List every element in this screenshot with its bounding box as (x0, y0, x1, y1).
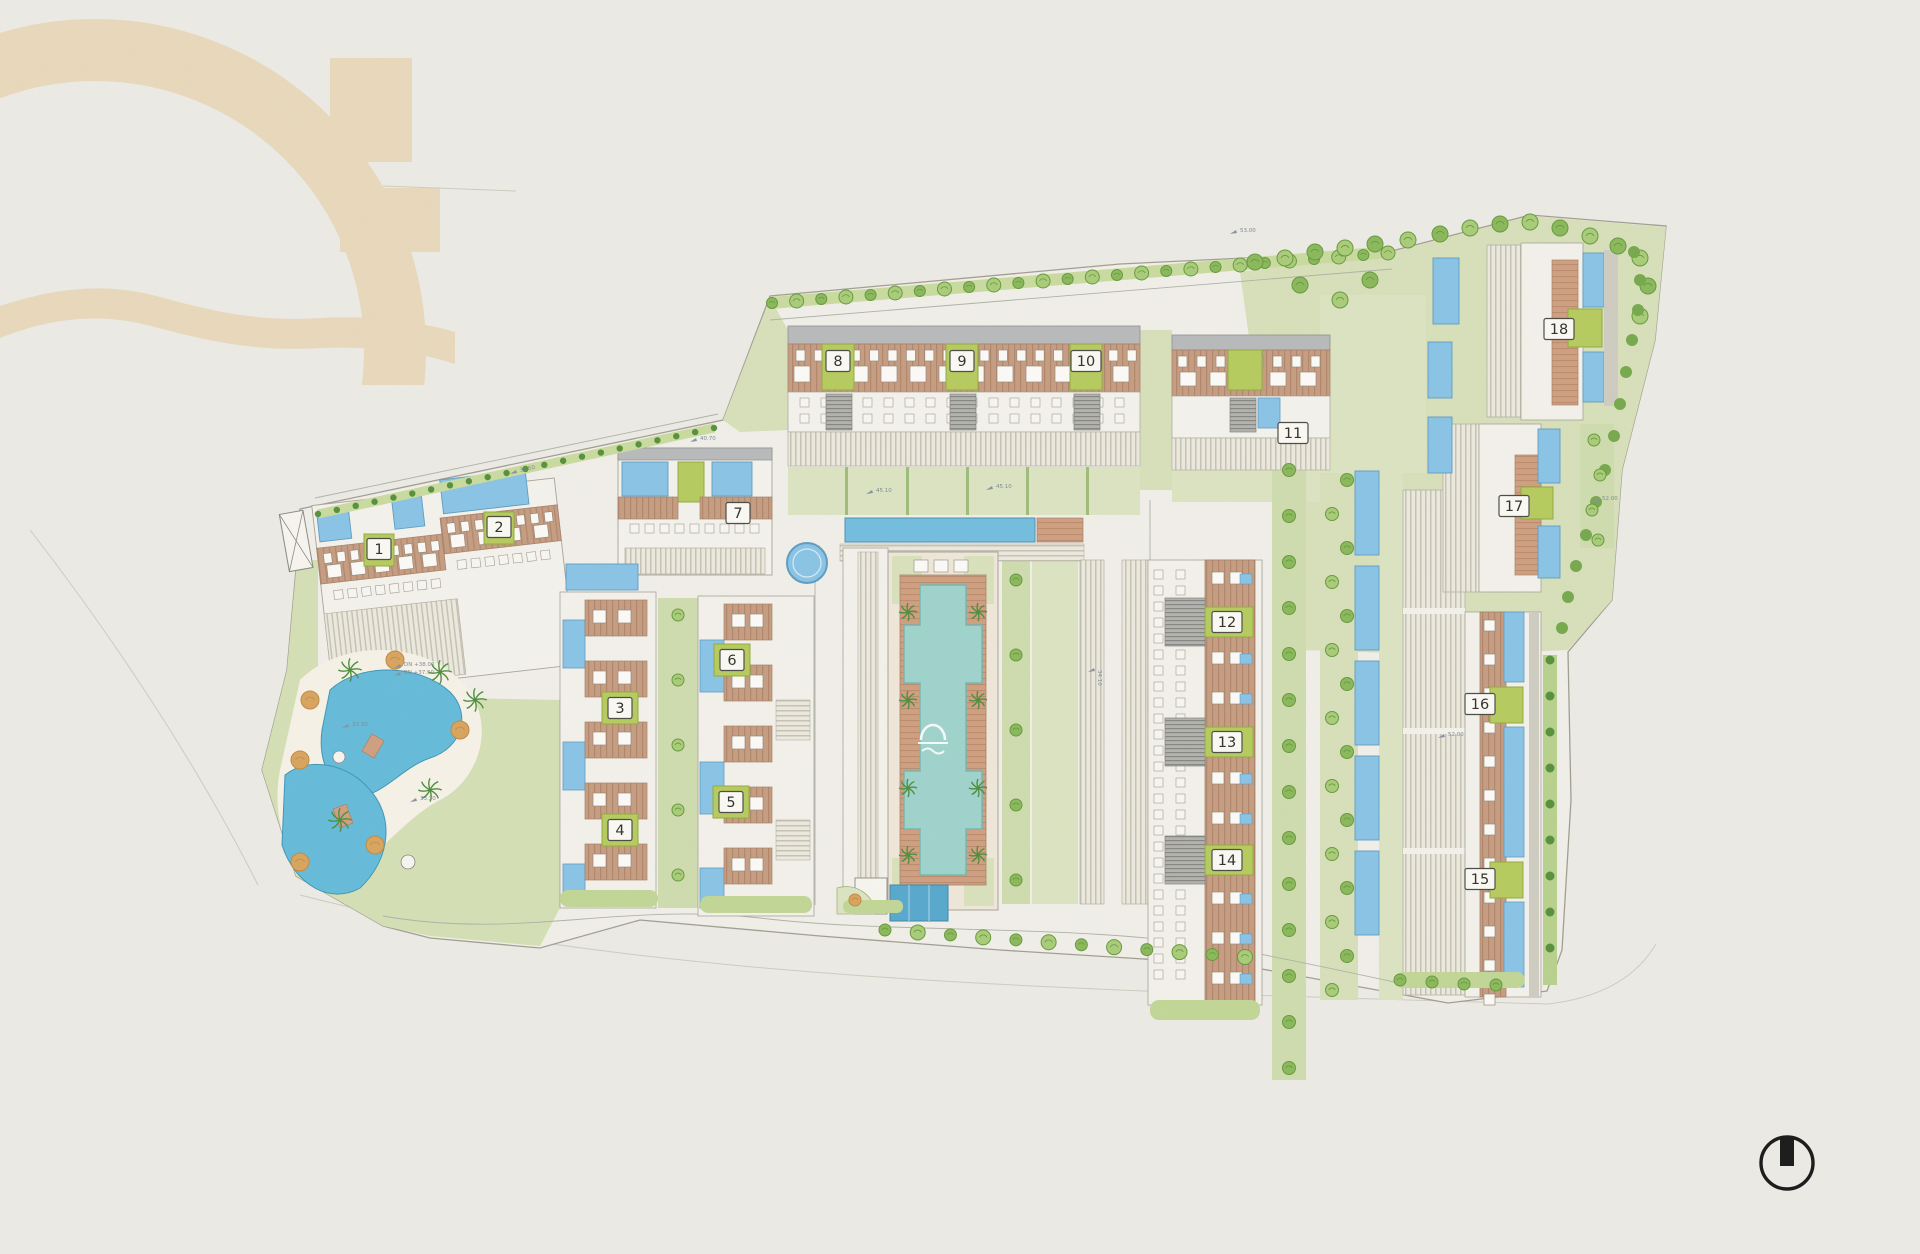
svg-text:15: 15 (1471, 872, 1489, 888)
level-annotation: DN +38.00 (404, 662, 435, 668)
building-badge-10: 10 (1071, 351, 1101, 372)
level-annotation: 52.00 (1602, 496, 1618, 502)
building-badge-4: 4 (608, 820, 632, 841)
svg-text:17: 17 (1505, 499, 1523, 515)
level-annotation: 53.00 (1240, 228, 1256, 234)
svg-text:13: 13 (1218, 735, 1236, 751)
building-badge-11: 11 (1278, 423, 1308, 444)
building-block-3-4 (560, 564, 656, 908)
level-annotation: 40.70 (700, 436, 716, 442)
building-badge-6: 6 (720, 650, 744, 671)
building-badge-9: 9 (950, 351, 974, 372)
building-block-5-6 (698, 596, 814, 916)
building-badge-3: 3 (608, 698, 632, 719)
svg-text:8: 8 (833, 354, 842, 370)
building-badge-13: 13 (1212, 732, 1242, 753)
svg-text:2: 2 (494, 520, 503, 536)
level-annotation: BN +37.50 (404, 670, 434, 676)
building-badge-17: 17 (1499, 496, 1529, 517)
svg-text:14: 14 (1218, 853, 1236, 869)
svg-text:1: 1 (374, 542, 383, 558)
building-badge-2: 2 (487, 517, 511, 538)
pool-column-mid (1355, 471, 1379, 935)
level-annotation: 33.30 (352, 722, 368, 728)
svg-text:16: 16 (1471, 697, 1489, 713)
level-annotation: 34.10 (1096, 670, 1102, 686)
building-badge-16: 16 (1465, 694, 1495, 715)
building-block-11 (1172, 335, 1330, 470)
building-badge-8: 8 (826, 351, 850, 372)
site-plan-drawing: 45.1045.1037.50DN +38.00BN +37.5033.3033… (0, 0, 1920, 1254)
building-badge-14: 14 (1212, 850, 1242, 871)
svg-text:6: 6 (727, 653, 736, 669)
svg-text:10: 10 (1077, 354, 1095, 370)
building-badge-18: 18 (1544, 319, 1574, 340)
level-annotation: 52.00 (1448, 732, 1464, 738)
level-annotation: 45.10 (876, 488, 892, 494)
site-plan-canvas: 45.1045.1037.50DN +38.00BN +37.5033.3033… (0, 0, 1920, 1254)
building-badge-5: 5 (719, 792, 743, 813)
svg-text:9: 9 (957, 354, 966, 370)
svg-text:18: 18 (1550, 322, 1568, 338)
level-annotation: 33.30 (420, 796, 436, 802)
building-badge-15: 15 (1465, 869, 1495, 890)
svg-text:7: 7 (733, 506, 742, 522)
svg-text:5: 5 (726, 795, 735, 811)
svg-text:3: 3 (615, 701, 624, 717)
central-courtyard (837, 548, 1148, 921)
building-badge-1: 1 (367, 539, 391, 560)
svg-text:11: 11 (1284, 426, 1302, 442)
building-badge-7: 7 (726, 503, 750, 524)
level-annotation: 45.10 (996, 484, 1012, 490)
svg-text:12: 12 (1218, 615, 1236, 631)
svg-text:4: 4 (615, 823, 624, 839)
building-badge-12: 12 (1212, 612, 1242, 633)
